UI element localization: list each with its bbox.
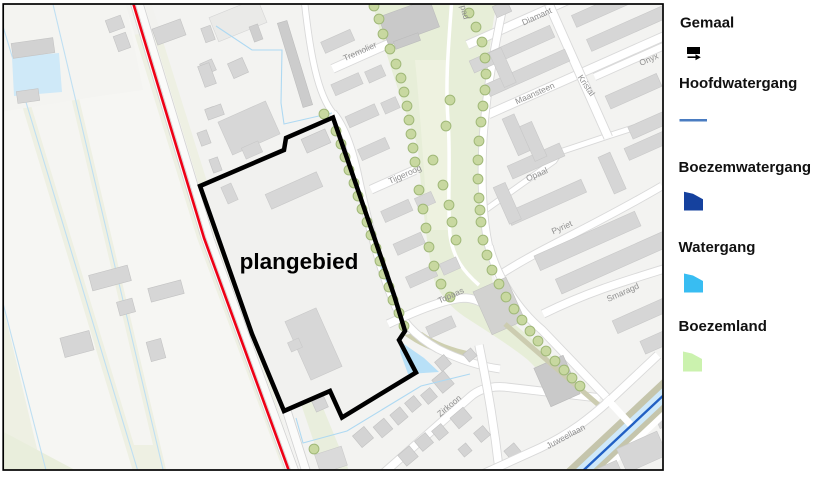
svg-text:Boezemland: Boezemland: [679, 318, 767, 335]
svg-text:Watergang: Watergang: [679, 239, 756, 256]
svg-text:Boezemwatergang: Boezemwatergang: [679, 159, 812, 176]
svg-text:plangebied: plangebied: [240, 249, 359, 274]
svg-text:Gemaal: Gemaal: [680, 15, 734, 32]
svg-text:Hoofdwatergang: Hoofdwatergang: [679, 75, 797, 92]
